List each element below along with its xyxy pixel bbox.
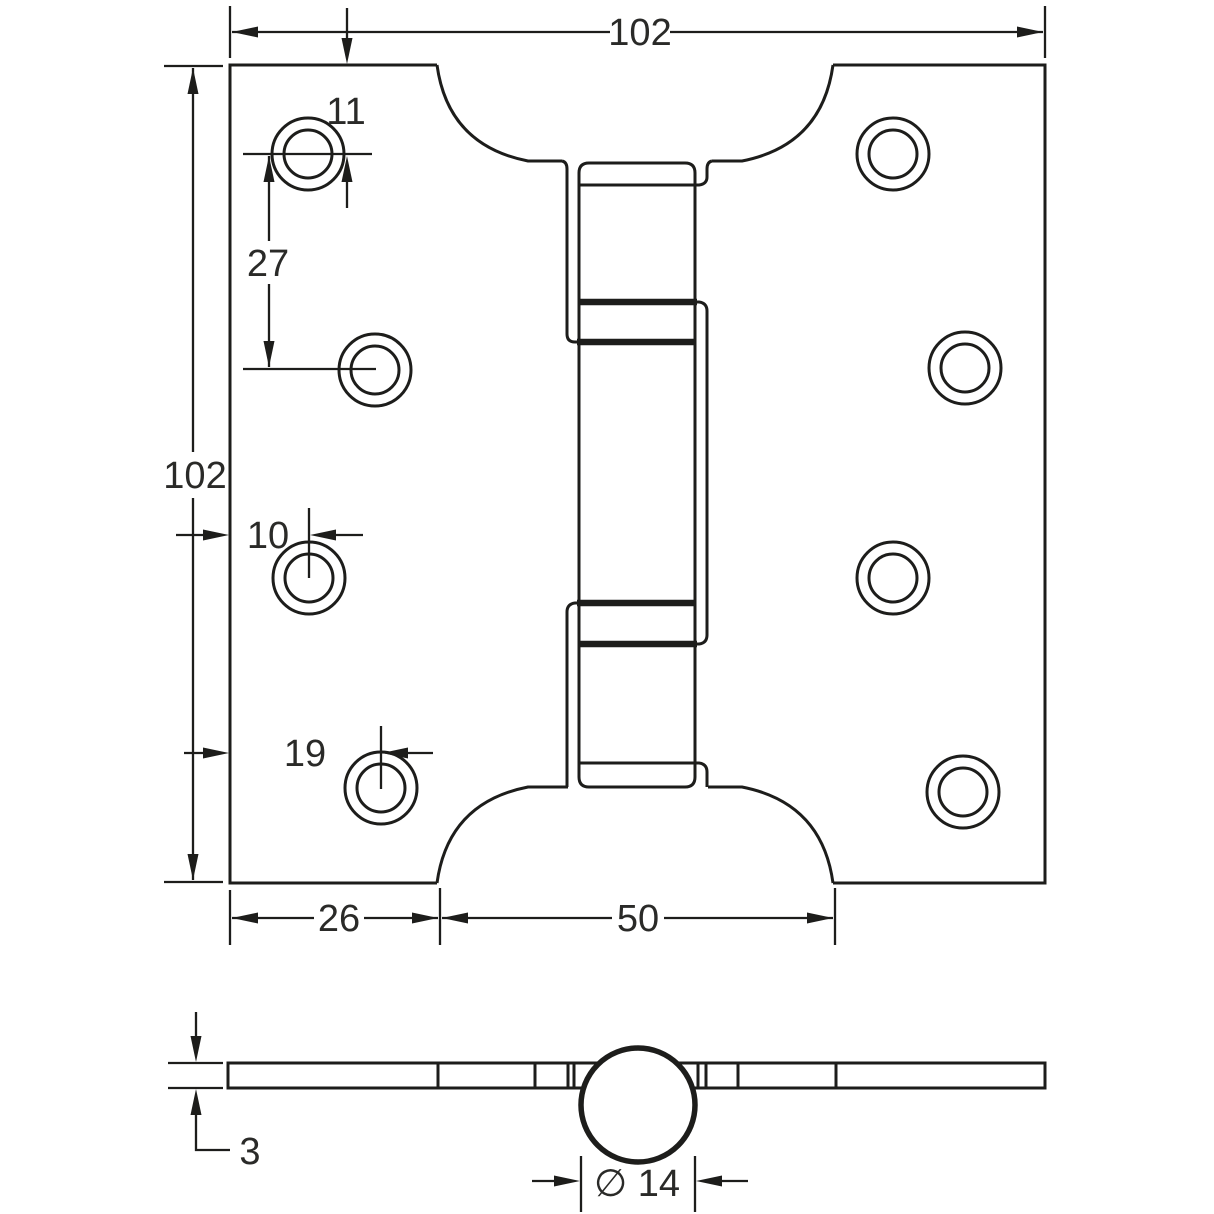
dimension-top-hole-offset: 11	[326, 8, 365, 208]
dim-overall-height-label: 102	[163, 455, 226, 497]
dim-top-hole-offset-label: 11	[326, 91, 365, 133]
screw-holes-right	[857, 118, 1001, 828]
arrowhead	[264, 341, 275, 367]
arrowhead	[191, 1089, 202, 1115]
dim-cutout-span-label: 50	[617, 898, 659, 940]
knuckle-profile-circle	[581, 1048, 695, 1162]
screw-hole	[939, 768, 987, 816]
arrowhead	[188, 854, 199, 880]
leader-line	[196, 1113, 230, 1150]
arrowhead	[203, 748, 229, 759]
front-view: 102 102 11 27	[162, 6, 1045, 945]
dim-hole-edge-offset-large-label: 19	[284, 733, 326, 775]
arrowhead	[696, 1176, 722, 1187]
drawing-svg: 102 102 11 27	[0, 0, 1214, 1214]
hinge-technical-drawing: 102 102 11 27	[0, 0, 1214, 1214]
dimension-overall-height: 102	[162, 66, 228, 882]
dimension-hole-edge-offset-small: 10	[176, 515, 363, 557]
top-left-cutout-curve	[437, 65, 562, 161]
dimension-leaf-flat-width: 26	[230, 888, 440, 945]
bottom-left-cutout-curve	[437, 787, 568, 883]
right-leaf-outline	[833, 65, 1045, 883]
dim-knuckle-diameter-label: ∅ 14	[594, 1163, 680, 1205]
dimension-overall-width: 102	[230, 6, 1045, 58]
dim-hole-edge-offset-small-label: 10	[247, 515, 289, 557]
dim-leaf-flat-width-label: 26	[318, 898, 360, 940]
arrowhead	[382, 748, 408, 759]
arrowhead	[442, 913, 468, 924]
dimension-knuckle-diameter: ∅ 14	[532, 1156, 748, 1212]
screw-hole	[941, 344, 989, 392]
dim-hole-pitch-label: 27	[247, 243, 289, 285]
arrowhead	[310, 530, 336, 541]
dim-leaf-thickness-label: 3	[239, 1131, 260, 1173]
arrowhead	[232, 913, 258, 924]
screw-hole	[869, 130, 917, 178]
arrowhead	[554, 1176, 580, 1187]
arrowhead	[203, 530, 229, 541]
arrowhead	[191, 1036, 202, 1062]
bottom-right-cutout-curve	[708, 787, 833, 883]
dimension-cutout-span: 50	[442, 888, 835, 945]
arrowhead	[232, 27, 258, 38]
arrowhead	[1017, 27, 1043, 38]
arrowhead	[342, 38, 353, 64]
arrowhead	[188, 68, 199, 94]
arrowhead	[412, 913, 438, 924]
dim-overall-width-label: 102	[608, 12, 671, 54]
knuckle-barrel	[562, 161, 712, 787]
screw-hole	[869, 554, 917, 602]
dimension-hole-pitch: 27	[245, 156, 293, 367]
barrel-body	[579, 163, 695, 787]
top-right-cutout-curve	[712, 65, 833, 161]
screw-holes-left	[272, 118, 417, 824]
dimension-leaf-thickness: 3	[168, 1012, 261, 1173]
side-view: 3 ∅ 14	[168, 1012, 1045, 1212]
arrowhead	[807, 913, 833, 924]
